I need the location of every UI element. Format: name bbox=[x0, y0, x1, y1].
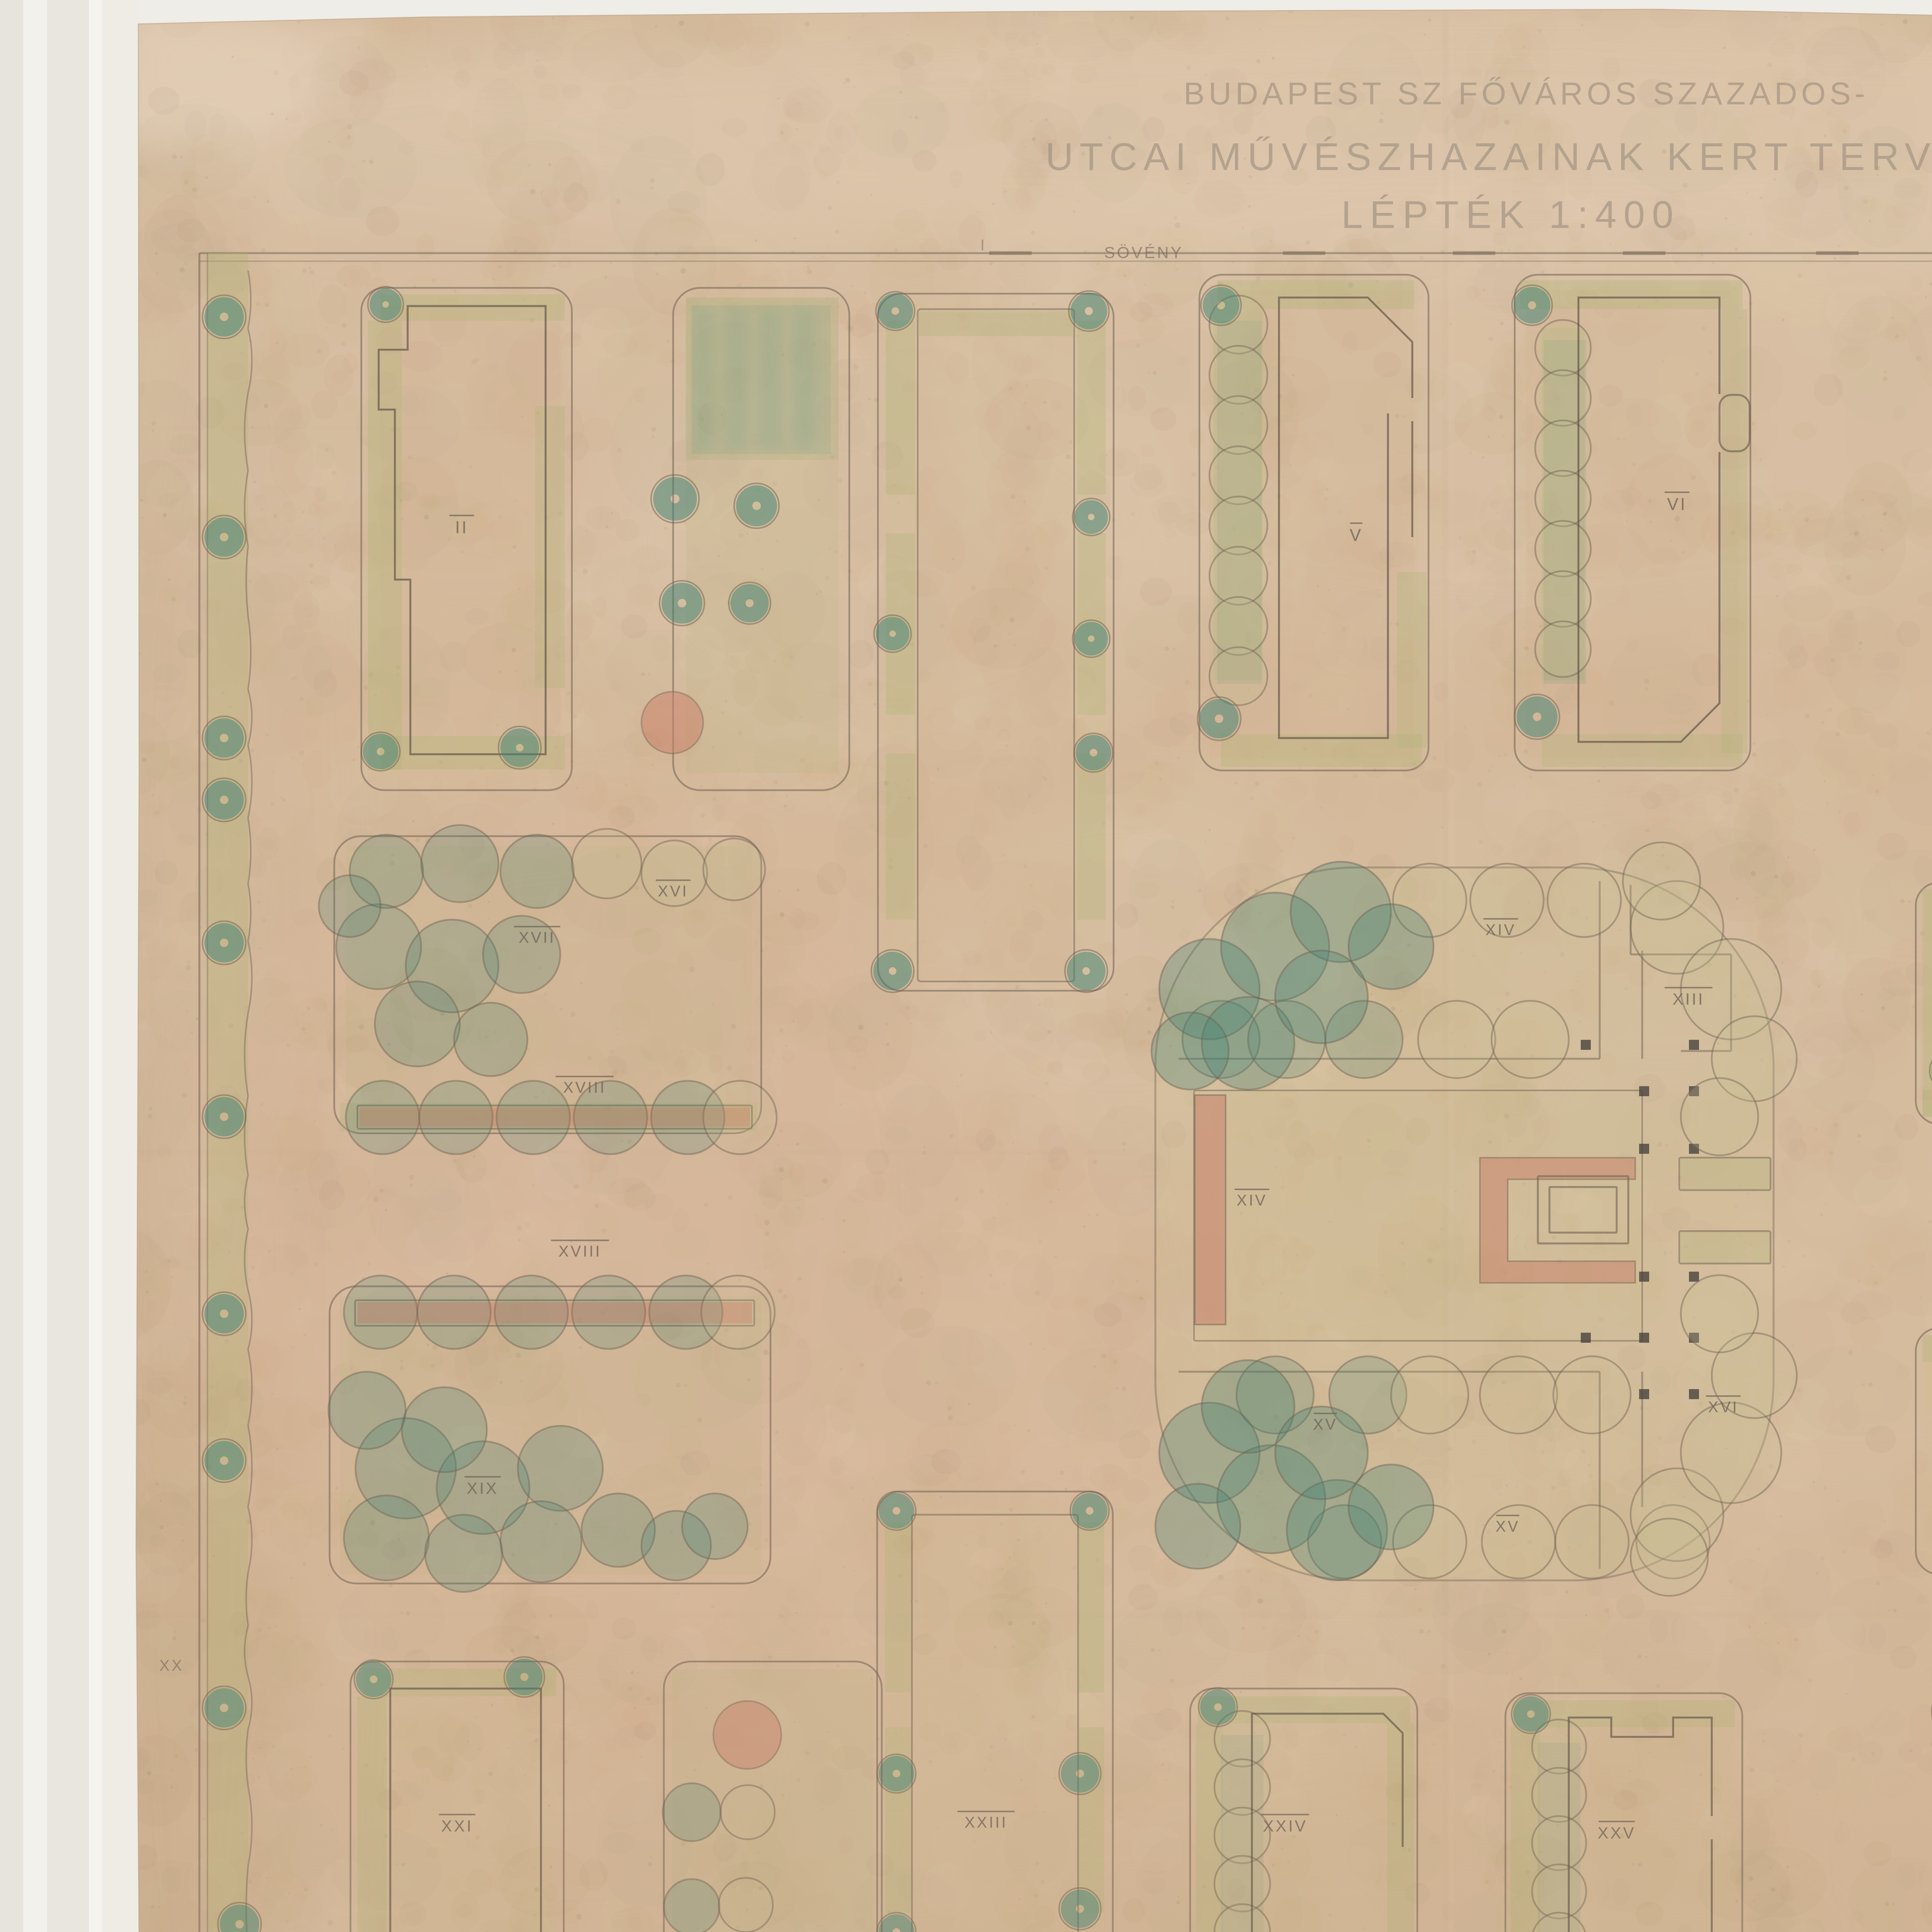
svg-text:V: V bbox=[1350, 526, 1363, 544]
svg-text:XIV: XIV bbox=[1485, 921, 1516, 938]
svg-text:XVIII: XVIII bbox=[563, 1079, 606, 1096]
svg-text:XVIII: XVIII bbox=[558, 1243, 602, 1260]
svg-text:XIII: XIII bbox=[1672, 990, 1704, 1008]
svg-text:XIV: XIV bbox=[1236, 1192, 1267, 1209]
svg-text:SÖVÉNY: SÖVÉNY bbox=[1104, 243, 1183, 262]
svg-text:UTCAI MŰVÉSZHAZAINAK KERT TE: UTCAI MŰVÉSZHAZAINAK KERT TERVE bbox=[1045, 135, 1932, 178]
svg-text:I: I bbox=[980, 236, 986, 253]
svg-text:XVI: XVI bbox=[658, 883, 688, 900]
svg-text:BUDAPEST SZ FŐVÁROS SZAZADO: BUDAPEST SZ FŐVÁROS SZAZADOS- bbox=[1184, 76, 1869, 111]
svg-text:II: II bbox=[455, 518, 468, 537]
svg-text:XVII: XVII bbox=[519, 929, 556, 946]
svg-text:LÉPTÉK 1:400: LÉPTÉK 1:400 bbox=[1341, 193, 1680, 236]
svg-text:VI: VI bbox=[1667, 495, 1687, 514]
